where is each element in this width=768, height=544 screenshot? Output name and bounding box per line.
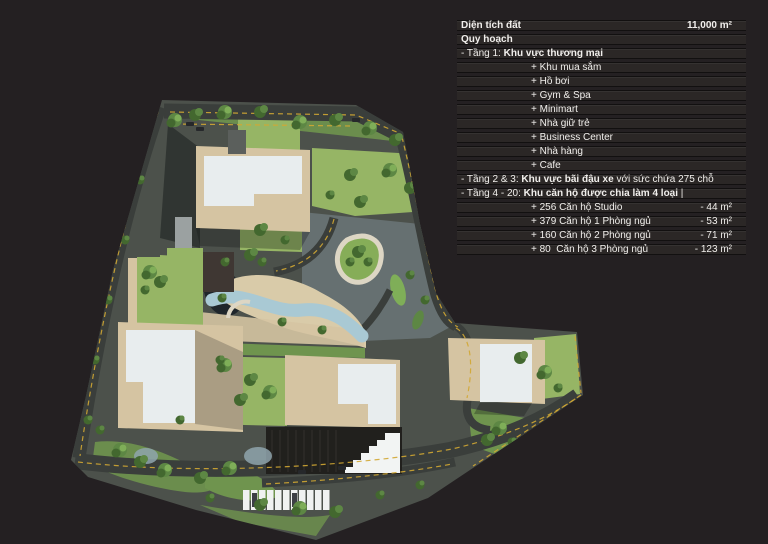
- row-text: + Khu mua sắm: [531, 63, 601, 72]
- presentation-canvas: Diện tích đất 11,000 m² Quy hoạch - Tầng…: [0, 0, 768, 544]
- row-text: + Business Center: [531, 133, 613, 142]
- row-value: 11,000 m²: [687, 21, 732, 30]
- row-text: + Nhà giữ trẻ: [531, 119, 590, 128]
- row-value: - 71 m²: [700, 231, 732, 240]
- info-row: + Hồ bơi: [457, 76, 746, 87]
- row-value: - 123 m²: [695, 245, 732, 254]
- row-text: + 379 Căn hộ 1 Phòng ngủ: [531, 217, 651, 226]
- info-row: + Cafe: [457, 160, 746, 171]
- row-text: + 80 Căn hộ 3 Phòng ngủ: [531, 245, 648, 254]
- info-row: - Tầng 4 - 20: Khu căn hộ được chia làm …: [457, 188, 746, 199]
- row-text-bold: Diện tích đất: [461, 21, 521, 30]
- info-row: - Tầng 2 & 3: Khu vực bãi đậu xe với sức…: [457, 174, 746, 185]
- row-text: - Tầng 4 - 20:: [461, 189, 524, 198]
- row-value: - 53 m²: [700, 217, 732, 226]
- info-row: + 80 Căn hộ 3 Phòng ngủ - 123 m²: [457, 244, 746, 255]
- row-text: - Tầng 1:: [461, 49, 504, 58]
- row-text-bold: Khu vực bãi đậu xe: [521, 175, 613, 184]
- row-text: + 160 Căn hộ 2 Phòng ngủ: [531, 231, 651, 240]
- info-rows: Diện tích đất 11,000 m² Quy hoạch - Tầng…: [457, 20, 746, 255]
- row-text: + Minimart: [531, 105, 578, 114]
- info-row: + 379 Căn hộ 1 Phòng ngủ - 53 m²: [457, 216, 746, 227]
- row-text: + Nhà hàng: [531, 147, 583, 156]
- row-text: + Cafe: [531, 161, 561, 170]
- info-row: + 160 Căn hộ 2 Phòng ngủ - 71 m²: [457, 230, 746, 241]
- row-text-suffix: |: [678, 189, 683, 198]
- row-text: + Gym & Spa: [531, 91, 591, 100]
- row-text-suffix: với sức chứa 275 chỗ: [614, 175, 714, 184]
- info-row: + Khu mua sắm: [457, 62, 746, 73]
- row-text-bold: Khu vực thương mại: [504, 49, 603, 58]
- info-row: + Gym & Spa: [457, 90, 746, 101]
- row-text-bold: Khu căn hộ được chia làm 4 loại: [524, 189, 678, 198]
- info-row: + Minimart: [457, 104, 746, 115]
- info-row: + Nhà hàng: [457, 146, 746, 157]
- row-text-bold: Quy hoạch: [461, 35, 513, 44]
- info-row: Diện tích đất 11,000 m²: [457, 20, 746, 31]
- small-structure: [175, 217, 192, 253]
- triangle-park: [337, 236, 381, 282]
- row-value: - 44 m²: [700, 203, 732, 212]
- row-text: + Hồ bơi: [531, 77, 570, 86]
- info-row: + Business Center: [457, 132, 746, 143]
- info-row: Quy hoạch: [457, 34, 746, 45]
- info-row: + Nhà giữ trẻ: [457, 118, 746, 129]
- project-info-panel: Diện tích đất 11,000 m² Quy hoạch - Tầng…: [457, 20, 746, 258]
- info-row: - Tầng 1: Khu vực thương mại: [457, 48, 746, 59]
- row-text: + 256 Căn hộ Studio: [531, 203, 622, 212]
- info-row: + 256 Căn hộ Studio - 44 m²: [457, 202, 746, 213]
- row-text: - Tầng 2 & 3:: [461, 175, 521, 184]
